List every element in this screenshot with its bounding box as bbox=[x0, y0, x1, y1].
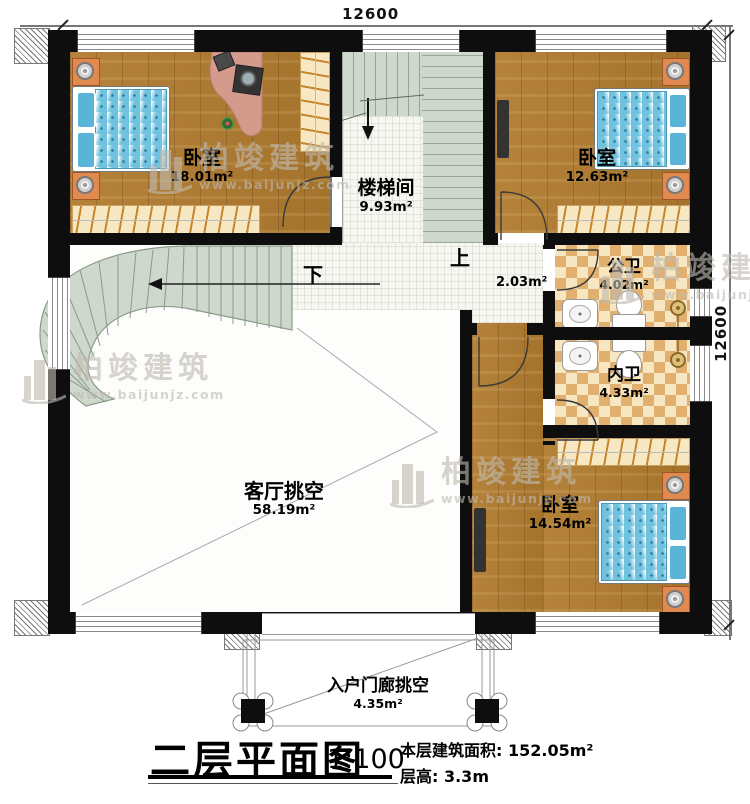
room-label-private-bathroom: 内卫 4.33m² bbox=[599, 366, 648, 400]
hallway-area-label: 2.03m² bbox=[496, 275, 547, 290]
door-arc bbox=[557, 400, 598, 440]
floor-plan: 卧室 18.01m² 楼梯间 9.93m² 卧室 12.63m² 公卫 4.02… bbox=[0, 0, 750, 804]
room-label-bedroom-bottom-right: 卧室 14.54m² bbox=[529, 495, 592, 532]
stair-down-label: 下 bbox=[303, 259, 323, 288]
room-label-entry-porch: 入户门廊挑空 4.35m² bbox=[327, 677, 429, 711]
room-label-public-bathroom: 公卫 4.02m² bbox=[599, 258, 648, 292]
stair-up-label: 上 bbox=[450, 242, 470, 271]
door-arc bbox=[479, 337, 528, 386]
building-area-text: 本层建筑面积: 152.05m² bbox=[400, 737, 593, 761]
floor-height-text: 层高: 3.3m bbox=[400, 763, 489, 787]
door-arc bbox=[557, 250, 598, 290]
door-arc bbox=[283, 177, 331, 227]
room-label-stairwell: 楼梯间 9.93m² bbox=[357, 178, 414, 215]
room-label-living-void: 客厅挑空 58.19m² bbox=[244, 480, 324, 519]
room-label-bedroom-top-right: 卧室 12.63m² bbox=[566, 148, 629, 185]
title-underline bbox=[148, 775, 392, 779]
door-arc bbox=[501, 192, 547, 240]
room-label-bedroom-top-left: 卧室 18.01m² bbox=[171, 148, 234, 185]
drawing-scale: 1:100 bbox=[327, 744, 405, 775]
title-underline-thin bbox=[148, 783, 398, 784]
